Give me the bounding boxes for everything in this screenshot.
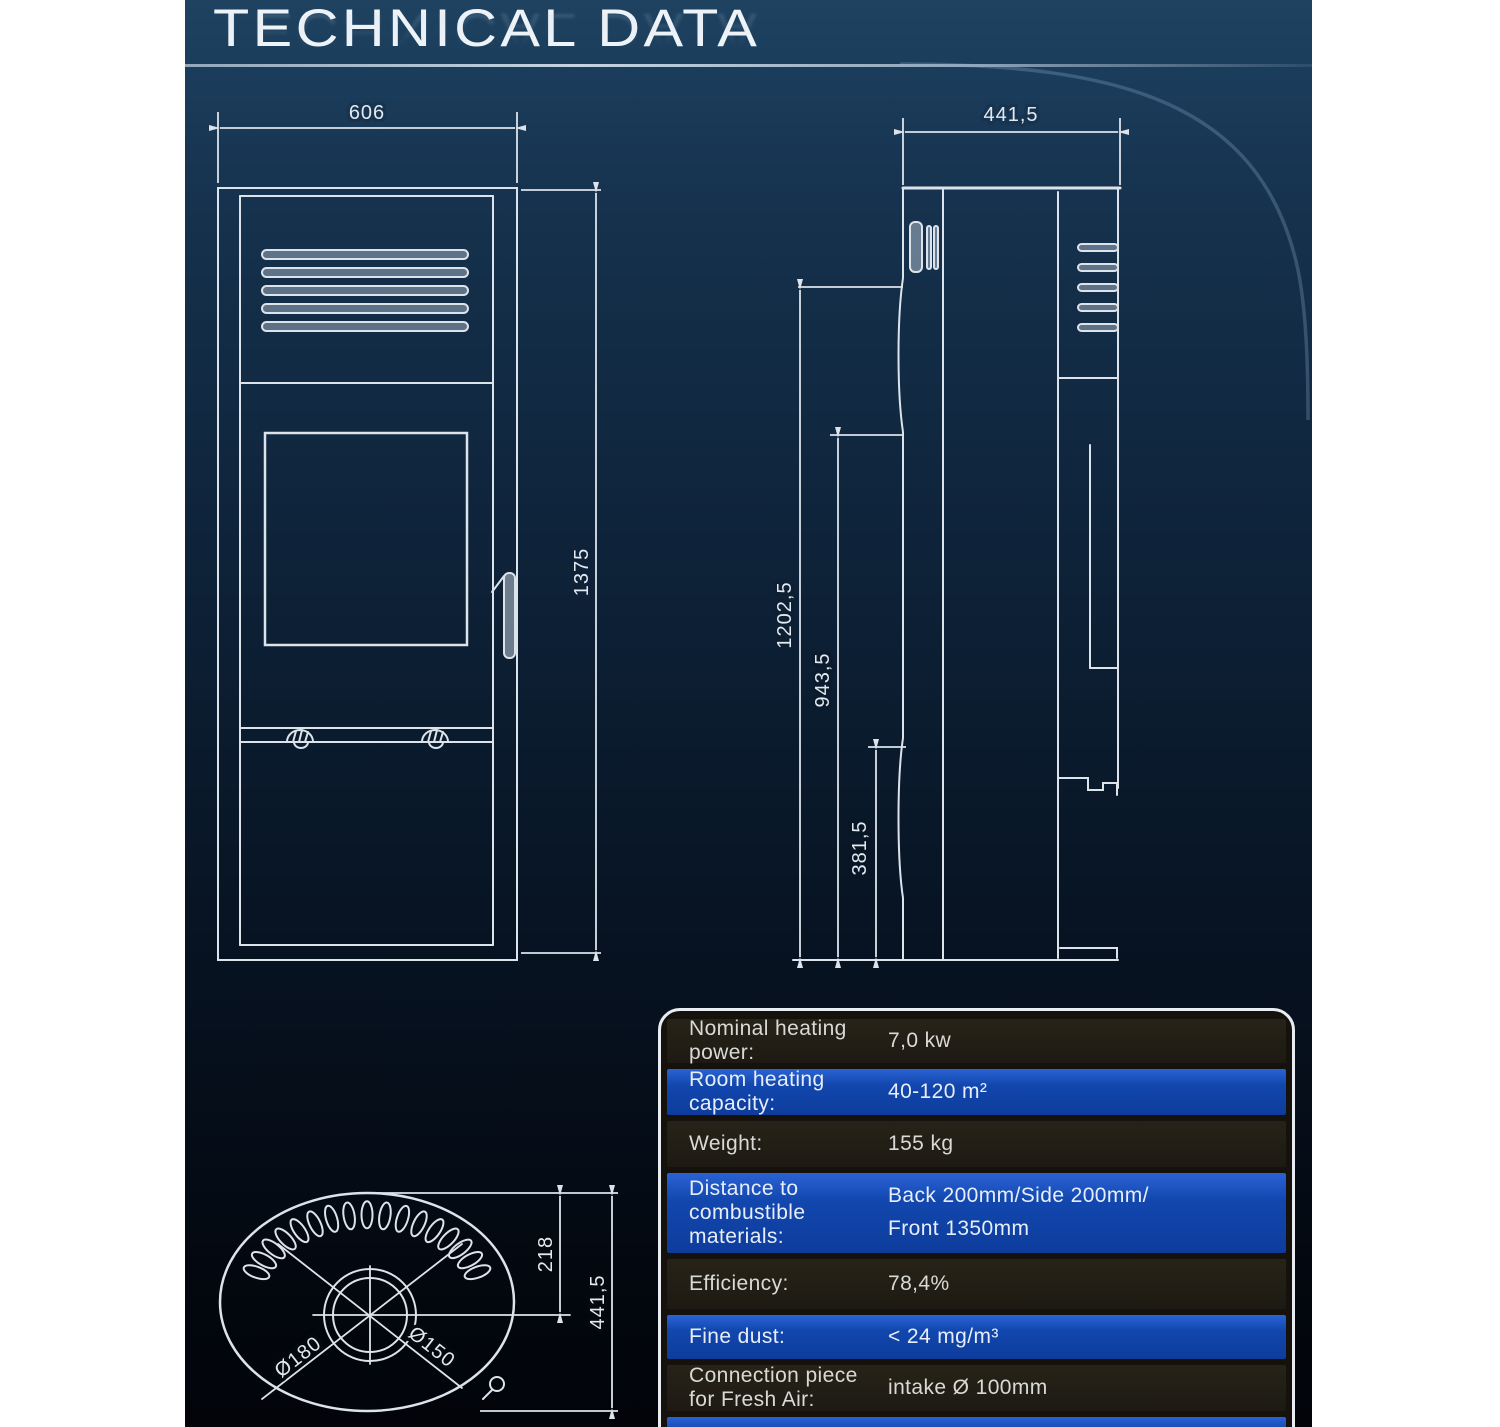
side-foot <box>1060 948 1117 958</box>
spec-label: Distance to combustible materials: <box>667 1177 888 1249</box>
table-row: Weight: 155 kg <box>667 1121 1286 1167</box>
dim-side-flue-height: 1202,5 <box>774 581 796 648</box>
decorative-swoosh <box>900 64 1308 420</box>
spec-value: 155 kg <box>888 1132 1286 1156</box>
dim-top-depth: 441,5 <box>587 1274 609 1329</box>
door-handle <box>492 573 515 658</box>
dim-side-depth: 441,5 <box>983 104 1038 126</box>
spec-label: Weight: <box>667 1132 888 1156</box>
top-view-drawing: Ø180 Ø150 <box>220 1193 570 1411</box>
label-flue-diameter-outer: Ø180 <box>271 1332 326 1382</box>
spec-label: Nominal heating power: <box>667 1017 888 1065</box>
side-front-edge <box>899 188 904 960</box>
front-view-drawing <box>218 188 517 960</box>
dim-side-lower-height: 381,5 <box>849 820 871 875</box>
door-hinge-left <box>287 730 313 748</box>
dim-top-flue-offset: 218 <box>535 1236 557 1272</box>
spec-value-line-1: Back 200mm/Side 200mm/ <box>888 1180 1278 1213</box>
spec-table: Nominal heating power: 7,0 kw Room heati… <box>658 1008 1295 1427</box>
dim-front-height: 1375 <box>571 548 593 597</box>
spec-value: 7,0 kw <box>888 1029 1286 1053</box>
side-vent-slats <box>1078 244 1118 331</box>
side-handle-bars <box>910 222 938 272</box>
air-intake-knob <box>483 1377 504 1399</box>
dim-front-width: 606 <box>349 102 385 124</box>
table-row: Connection piece for Fresh Air: intake Ø… <box>667 1365 1286 1411</box>
air-connection-detail <box>1058 778 1117 795</box>
table-row: Room heating capacity: 40-120 m² <box>667 1069 1286 1115</box>
datasheet-page: TECHNICAL DATA TECHNICAL DATA <box>185 0 1312 1427</box>
table-row: Fine dust: < 24 mg/m³ <box>667 1315 1286 1359</box>
spec-label: Fine dust: <box>667 1325 888 1349</box>
spec-label: Connection piece for Fresh Air: <box>667 1364 888 1412</box>
door-glass-window <box>265 433 467 645</box>
side-view-drawing <box>793 188 1120 960</box>
spec-value: < 24 mg/m³ <box>888 1325 1286 1349</box>
side-view-dimensions: 441,5 1202,5 943,5 381,5 <box>774 104 1120 957</box>
spec-value-line-2: Front 1350mm <box>888 1213 1278 1246</box>
spec-label: Room heating capacity: <box>667 1068 888 1116</box>
front-view-dimensions: 606 1375 <box>218 102 601 953</box>
spec-value: intake Ø 100mm <box>888 1376 1286 1400</box>
table-row: Efficiency: 78,4% <box>667 1259 1286 1309</box>
spec-value: 40-120 m² <box>888 1080 1286 1104</box>
top-plate-outline <box>220 1193 514 1411</box>
spec-value: 78,4% <box>888 1272 1286 1296</box>
table-row: Distance to combustible materials: Back … <box>667 1173 1286 1253</box>
spec-label: Efficiency: <box>667 1272 888 1296</box>
spec-value: Back 200mm/Side 200mm/ Front 1350mm <box>888 1180 1286 1245</box>
table-row-partial <box>667 1417 1286 1427</box>
front-vent-slats <box>262 250 468 331</box>
table-row: Nominal heating power: 7,0 kw <box>667 1019 1286 1063</box>
door-hinge-right <box>422 730 448 748</box>
dim-side-mid-height: 943,5 <box>812 652 834 707</box>
